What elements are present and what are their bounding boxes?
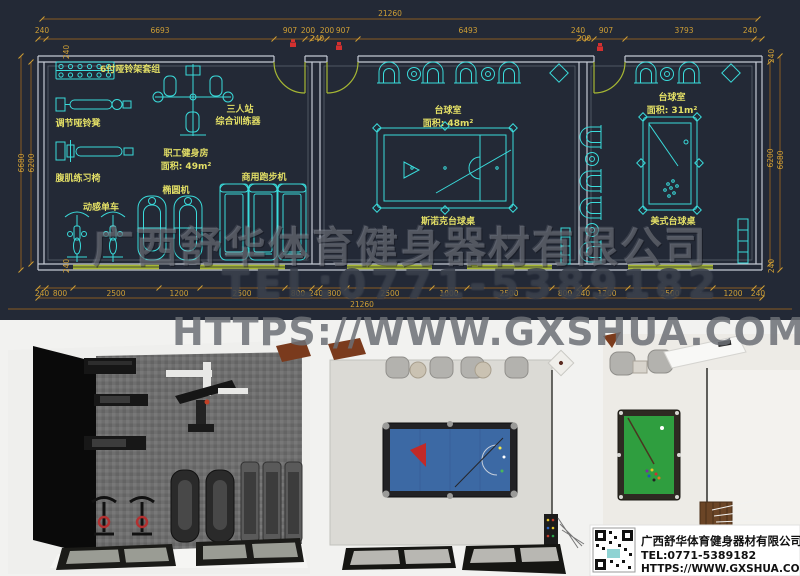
dim-top: 907 (336, 26, 351, 35)
floor-plan: 6付哑铃架套组 调节哑铃凳 三人站 综合训练器 职工健身房 面积: 49m² 腹… (0, 0, 800, 320)
dim-bottom: 240 (751, 289, 766, 298)
dim-right-inner: 6200 (766, 148, 775, 167)
dim-right-total: 6680 (776, 150, 785, 169)
info-box: 广西舒华体育健身器材有限公司 TEL:0771-5389182 HTTPS://… (590, 525, 800, 576)
dim-top: 3793 (674, 26, 693, 35)
label-dumbbell-rack: 6付哑铃架套组 (100, 63, 160, 75)
dim-bottom: 2500 (660, 289, 679, 298)
dim-top: 6693 (150, 26, 169, 35)
label-trainer-1: 三人站 (226, 103, 253, 115)
dim-top: 240 (310, 34, 325, 43)
dim-total-bottom: 21260 (350, 300, 374, 309)
dim-bottom: 800 (53, 289, 68, 298)
dim-bottom: 800 (291, 289, 306, 298)
dim-bottom: 240 (576, 289, 591, 298)
renders-strip: 广西舒华体育健身器材有限公司 TEL:0771-5389182 HTTPS://… (0, 320, 800, 576)
screenshot-root: 6付哑铃架套组 调节哑铃凳 三人站 综合训练器 职工健身房 面积: 49m² 腹… (0, 0, 800, 576)
cad-background (0, 0, 800, 320)
billiard2-name: 台球室 (658, 91, 685, 103)
render2-pool-table (383, 421, 518, 499)
gym-name: 职工健身房 (163, 147, 208, 159)
info-tel: TEL:0771-5389182 (641, 549, 756, 562)
billiard1-area: 面积: 48m² (423, 117, 474, 129)
dim-bottom: 240 (35, 289, 50, 298)
label-bench: 调节哑铃凳 (55, 117, 101, 129)
dim-top: 240 (35, 26, 50, 35)
render3-pool-table (617, 410, 681, 500)
dim-bottom: 2500 (232, 289, 251, 298)
dim-top: 200 (320, 26, 335, 35)
label-trainer-2: 综合训练器 (215, 115, 261, 127)
label-ab-chair: 腹肌练习椅 (54, 172, 100, 184)
label-treadmill: 商用跑步机 (241, 171, 286, 183)
label-pool-table: 美式台球桌 (650, 215, 696, 227)
render-gym-black-wall (33, 346, 96, 556)
label-snooker-table: 斯诺克台球桌 (421, 215, 476, 227)
dim-top: 200 (577, 34, 592, 43)
dim-bottom: 2500 (380, 289, 399, 298)
gym-area: 面积: 49m² (161, 160, 212, 172)
dim-left-total: 6680 (17, 153, 26, 172)
dim-bottom: 1200 (169, 289, 188, 298)
dim-total-top: 21260 (378, 9, 402, 18)
dim-bottom: 1000 (439, 289, 458, 298)
dim-left-inner: 6200 (27, 153, 36, 172)
label-elliptical: 椭圆机 (162, 184, 189, 196)
info-url: HTTPS://WWW.GXSHUA.COM (641, 563, 800, 575)
dim-bottom: 240 (309, 289, 324, 298)
dim-top: 907 (283, 26, 298, 35)
render-gym (8, 340, 311, 574)
info-company: 广西舒华体育健身器材有限公司 (641, 534, 800, 548)
label-spin-bike: 动感单车 (83, 201, 119, 213)
dim-right-bottom: 240 (767, 259, 776, 274)
qr-code-icon (593, 528, 635, 572)
dim-top: 240 (743, 26, 758, 35)
render-treadmills (241, 462, 302, 542)
cad-and-renders-canvas: 6付哑铃架套组 调节哑铃凳 三人站 综合训练器 职工健身房 面积: 49m² 腹… (0, 0, 800, 576)
dim-bottom: 1200 (723, 289, 742, 298)
dim-right-top: 240 (767, 49, 776, 64)
billiard2-area: 面积: 31m² (647, 104, 698, 116)
dim-bottom: 800 (327, 289, 342, 298)
dim-left-top: 240 (62, 45, 71, 60)
dim-bottom: 2500 (499, 289, 518, 298)
billiard1-name: 台球室 (434, 104, 461, 116)
dim-bottom: 800 (558, 289, 573, 298)
dim-bottom: 2500 (106, 289, 125, 298)
render-billiard-blue (328, 338, 584, 574)
dim-top: 907 (599, 26, 614, 35)
dim-top: 6493 (458, 26, 477, 35)
dim-left-bottom: 240 (62, 259, 71, 274)
dim-bottom: 1200 (597, 289, 616, 298)
